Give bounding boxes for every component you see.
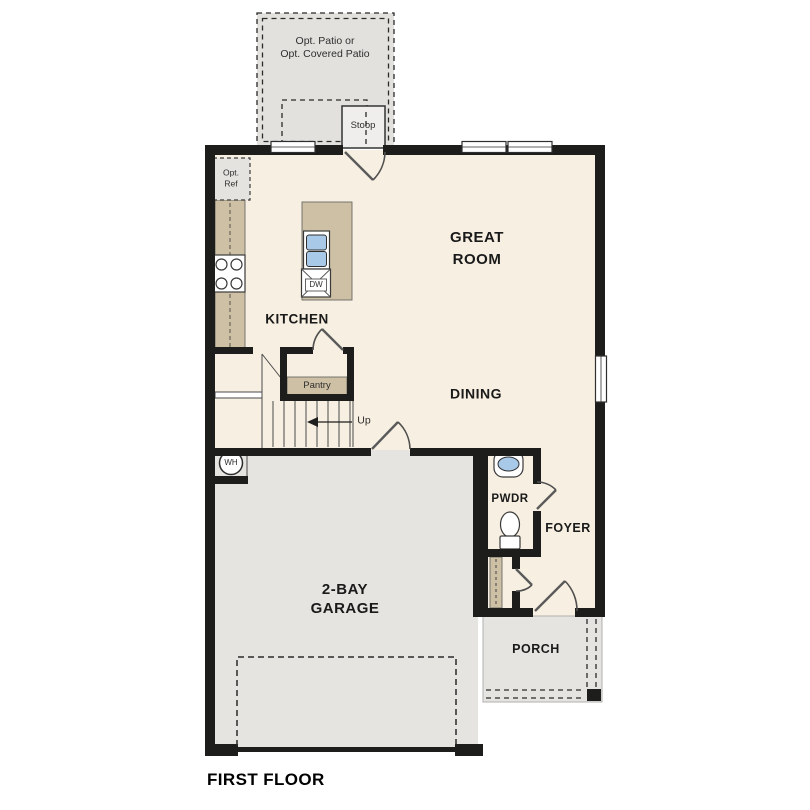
toilet [500,512,520,549]
up-label: Up [357,414,370,427]
optional-ref-label: Opt. Ref [223,167,239,188]
floor-plan: Opt. Patio or Opt. Covered Patio Stoop O… [0,0,810,810]
garage-label: 2-BAY GARAGE [311,580,380,618]
kitchen-label: KITCHEN [265,312,329,329]
dining-label: DINING [450,385,502,403]
foyer-label: FOYER [545,521,591,537]
water-heater-label: WH [224,458,237,468]
pantry-label: Pantry [303,380,330,392]
great-room-label: GREAT ROOM [450,227,504,271]
coat-closet-shelf [490,557,502,608]
optional-patio-label: Opt. Patio or Opt. Covered Patio [280,35,369,61]
porch-label: PORCH [512,642,560,658]
porch-column [587,689,601,701]
dining-window [596,356,607,402]
stove [213,255,245,292]
stoop-label: Stoop [351,120,376,132]
dishwasher-label: DW [309,280,322,290]
porch-floor [483,616,602,702]
island-sink [304,231,330,269]
floor-title: FIRST FLOOR [207,770,325,790]
floor-plan-drawing [0,0,810,810]
great-room-window-2 [508,142,552,153]
powder-room-label: PWDR [491,492,528,506]
kitchen-window [271,142,315,153]
great-room-window-1 [462,142,506,153]
garage-door-line [237,747,456,752]
